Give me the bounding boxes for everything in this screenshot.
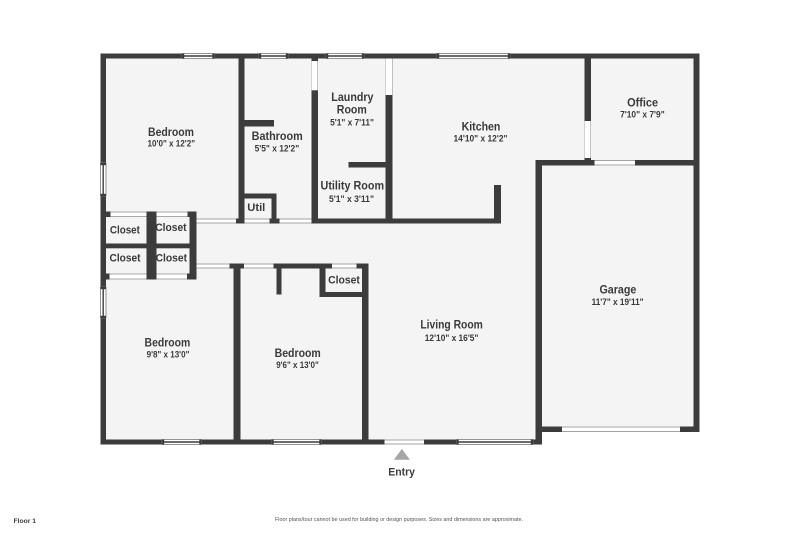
svg-text:Floor plans/tour cannot be use: Floor plans/tour cannot be used for buil… (275, 517, 523, 523)
svg-text:Living Room: Living Room (420, 318, 483, 332)
svg-text:7'10" x 7'9": 7'10" x 7'9" (620, 109, 665, 120)
svg-text:Bedroom: Bedroom (145, 336, 191, 350)
svg-text:Closet: Closet (156, 253, 188, 265)
svg-text:Room: Room (337, 102, 367, 116)
svg-text:Closet: Closet (110, 253, 141, 265)
svg-text:Entry: Entry (388, 466, 416, 478)
svg-text:Kitchen: Kitchen (462, 119, 501, 133)
svg-text:11'7" x 19'11": 11'7" x 19'11" (592, 297, 644, 308)
svg-text:10'0" x 12'2": 10'0" x 12'2" (148, 139, 196, 150)
svg-text:Bathroom: Bathroom (252, 129, 303, 143)
svg-text:Util: Util (247, 202, 265, 214)
svg-text:5'1" x 7'11": 5'1" x 7'11" (330, 117, 374, 128)
svg-text:Closet: Closet (328, 274, 360, 286)
svg-text:Garage: Garage (600, 283, 637, 297)
svg-text:14'10" x 12'2": 14'10" x 12'2" (454, 134, 508, 145)
svg-text:5'5" x 12'2": 5'5" x 12'2" (255, 143, 300, 154)
svg-text:Bedroom: Bedroom (275, 346, 321, 360)
svg-text:9'6" x 13'0": 9'6" x 13'0" (276, 360, 319, 371)
svg-text:Bedroom: Bedroom (148, 125, 194, 139)
svg-text:Closet: Closet (155, 222, 187, 234)
svg-text:Office: Office (627, 95, 658, 109)
svg-text:12'10" x 16'5": 12'10" x 16'5" (425, 333, 479, 344)
svg-text:5'1" x 3'11": 5'1" x 3'11" (329, 194, 374, 205)
svg-text:Closet: Closet (110, 224, 140, 236)
svg-text:Floor 1: Floor 1 (14, 518, 37, 525)
svg-text:9'8" x 13'0": 9'8" x 13'0" (147, 350, 190, 361)
svg-text:Utility Room: Utility Room (321, 179, 385, 193)
